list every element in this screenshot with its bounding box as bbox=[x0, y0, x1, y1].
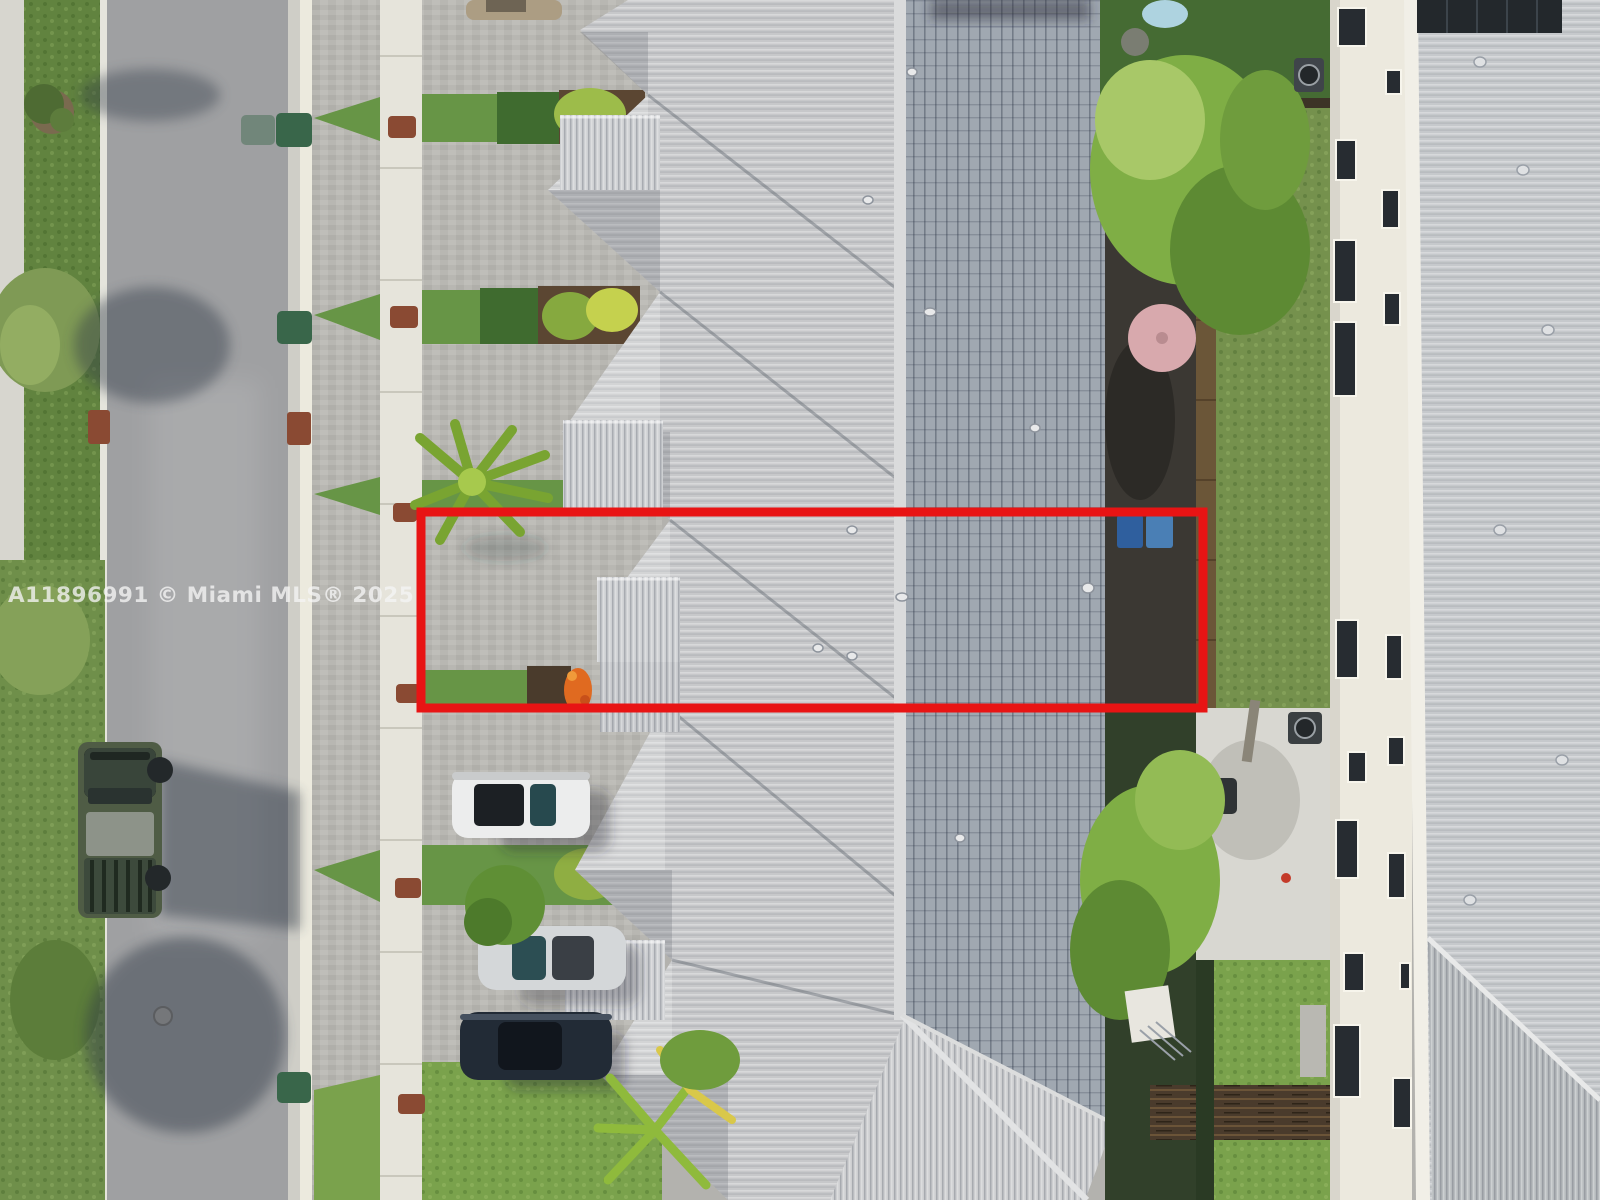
tree-shadow-mid bbox=[74, 287, 230, 403]
main-roof bbox=[548, 0, 1113, 1200]
dark-green-fence bbox=[1196, 960, 1214, 1200]
solar-panel bbox=[1417, 0, 1562, 33]
small-tree-shade bbox=[464, 898, 512, 946]
trash-bin-2 bbox=[277, 311, 312, 344]
umbrella-pole bbox=[1156, 332, 1168, 344]
truck-wheel-front bbox=[147, 757, 173, 783]
round-planter bbox=[1121, 28, 1149, 56]
hedge-1 bbox=[497, 92, 559, 144]
wild-bush-light bbox=[0, 305, 60, 385]
sedan-roof-glass bbox=[552, 936, 594, 980]
small-tree-2 bbox=[50, 108, 74, 132]
suv-roofline bbox=[452, 772, 590, 780]
tan-car-partial bbox=[466, 0, 562, 20]
trash-bin-3 bbox=[277, 1072, 311, 1103]
paver-pad bbox=[1300, 1005, 1326, 1077]
truck-windshield bbox=[88, 788, 152, 804]
truck-bed bbox=[84, 858, 156, 914]
truck-roof-rack bbox=[90, 752, 150, 760]
red-object bbox=[1281, 873, 1291, 883]
olive-truck bbox=[78, 742, 173, 918]
kiddie-pool bbox=[1142, 0, 1188, 28]
suv-sunroof bbox=[474, 784, 524, 826]
aerial-scene: A11896991 © Miami MLS® 2025 bbox=[0, 0, 1600, 1200]
hedge-2 bbox=[480, 288, 538, 344]
tree-shadow-bottom bbox=[85, 937, 285, 1133]
ac-fan-top bbox=[1299, 65, 1319, 85]
suv-windshield bbox=[530, 784, 556, 826]
tree-shadow-top bbox=[80, 69, 220, 121]
dark-blue-car bbox=[460, 1012, 625, 1090]
bin-shadow-1 bbox=[241, 115, 275, 145]
driveway-stain bbox=[463, 535, 547, 561]
wood-deck bbox=[1150, 1085, 1345, 1140]
bottom-shrub bbox=[660, 1030, 740, 1090]
truck-hood bbox=[86, 812, 154, 856]
aerial-photo: A11896991 © Miami MLS® 2025 bbox=[0, 0, 1600, 1200]
manhole-cover bbox=[154, 1007, 172, 1025]
grass-wedge-6 bbox=[314, 1075, 380, 1200]
roof-gap-shadow bbox=[930, 0, 1090, 20]
right-building bbox=[1330, 0, 1600, 1200]
bush-2b bbox=[586, 288, 638, 332]
dark-car-glass bbox=[498, 1022, 562, 1070]
dark-car-highlight bbox=[460, 1014, 612, 1020]
trash-bin-1 bbox=[276, 113, 312, 147]
truck-wheel-rear bbox=[145, 865, 171, 891]
mls-watermark: A11896991 © Miami MLS® 2025 bbox=[8, 583, 414, 608]
ac-fan bbox=[1295, 718, 1315, 738]
